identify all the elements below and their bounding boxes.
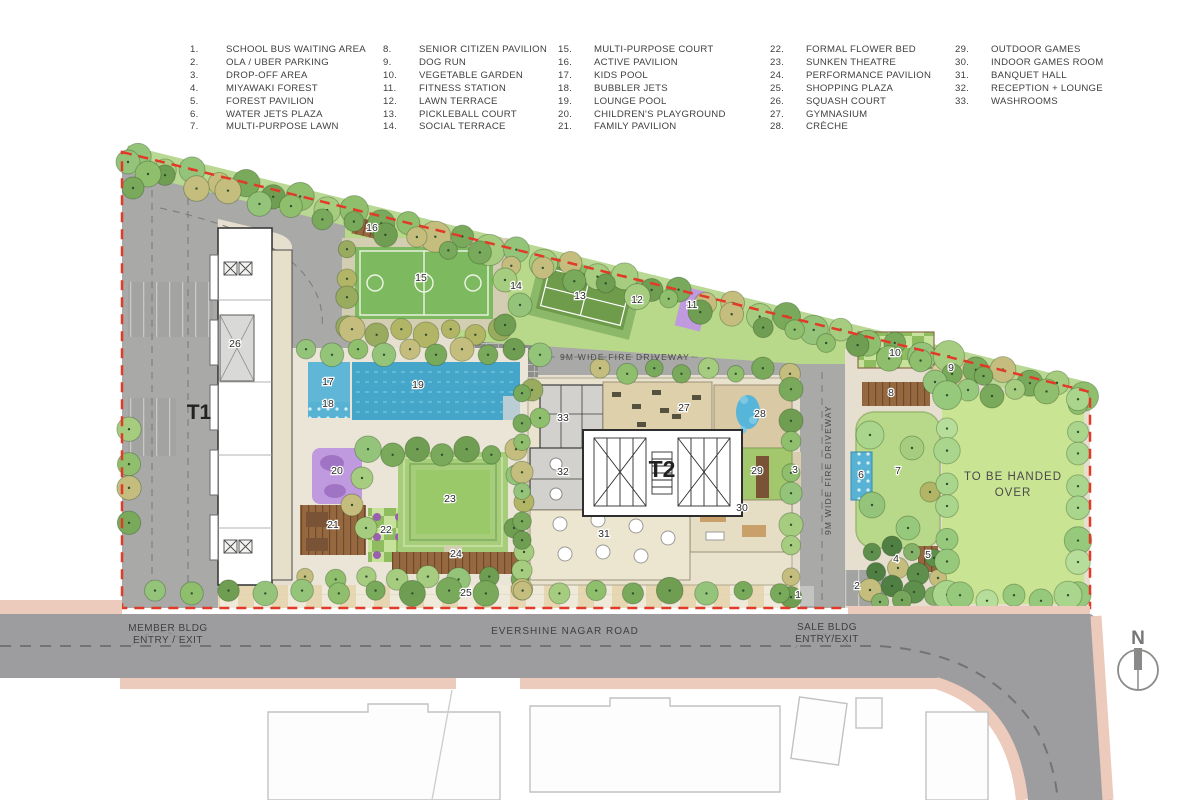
legend-item-number: 16. <box>558 57 594 70</box>
legend-item-label: RECEPTION + LOUNGE <box>991 83 1103 96</box>
tree <box>425 344 447 366</box>
plan-marker-4: 4 <box>893 553 899 565</box>
tree <box>896 516 920 540</box>
tree <box>513 512 532 531</box>
tree <box>296 339 315 358</box>
legend-item: 21.FAMILY PAVILION <box>558 121 726 134</box>
legend-item-number: 21. <box>558 121 594 134</box>
handed-over-label-2: OVER <box>995 487 1032 499</box>
tree <box>660 290 678 308</box>
plan-marker-30: 30 <box>736 502 748 514</box>
tree <box>1054 581 1082 609</box>
tree <box>859 492 885 518</box>
legend-item-label: CHILDREN'S PLAYGROUND <box>594 109 726 122</box>
tree <box>366 581 385 600</box>
tree <box>936 473 958 495</box>
tree <box>935 549 960 574</box>
tree <box>117 417 141 441</box>
legend-item-number: 15. <box>558 44 594 57</box>
plan-marker-32: 32 <box>557 466 569 478</box>
left-road <box>122 152 218 608</box>
legend-item: 7.MULTI-PURPOSE LAWN <box>190 121 366 134</box>
tree <box>511 461 533 483</box>
tree <box>399 580 425 606</box>
legend-item-label: OUTDOOR GAMES <box>991 44 1081 57</box>
tree <box>180 582 203 605</box>
gymnasium <box>603 382 712 435</box>
legend-item: 13.PICKLEBALL COURT <box>383 109 547 122</box>
legend-item: 2.OLA / UBER PARKING <box>190 57 366 70</box>
tree <box>817 334 836 353</box>
plan-marker-25: 25 <box>460 587 472 599</box>
legend-item: 14.SOCIAL TERRACE <box>383 121 547 134</box>
legend-item-number: 29. <box>955 44 991 57</box>
tree <box>253 581 278 606</box>
tree <box>291 579 314 602</box>
north-label: N <box>1131 628 1145 649</box>
compass-needle <box>1134 648 1142 670</box>
legend-item: 20.CHILDREN'S PLAYGROUND <box>558 109 726 122</box>
legend-item: 30.INDOOR GAMES ROOM <box>955 57 1103 70</box>
tree <box>856 421 884 449</box>
legend-item-label: SOCIAL TERRACE <box>419 121 506 134</box>
legend-column: 15.MULTI-PURPOSE COURT16.ACTIVE PAVILION… <box>558 44 726 134</box>
legend-item-label: MULTI-PURPOSE LAWN <box>226 121 339 134</box>
member-entry-label-1: MEMBER BLDG <box>128 623 207 634</box>
tree <box>436 578 462 604</box>
tree <box>381 443 405 467</box>
tree <box>863 543 881 561</box>
plan-marker-24: 24 <box>450 548 462 560</box>
tree <box>407 227 427 247</box>
tree <box>513 385 530 402</box>
legend-item-label: WASHROOMS <box>991 96 1058 109</box>
legend-item-number: 4. <box>190 83 226 96</box>
legend-item-number: 11. <box>383 83 419 96</box>
tree <box>454 436 480 462</box>
site-plan-page: N T1 T2 TO BE HANDED OVER 9M WIDE FIRE D… <box>0 0 1200 800</box>
tree <box>514 483 531 500</box>
plan-marker-17: 17 <box>322 376 334 388</box>
tree <box>936 528 958 550</box>
tree <box>1066 550 1091 575</box>
sale-entry-label-2: ENTRY/EXIT <box>795 634 859 645</box>
tree <box>441 320 460 339</box>
tree <box>279 195 302 218</box>
legend-item: 22.FORMAL FLOWER BED <box>770 44 931 57</box>
tree <box>478 345 498 365</box>
tree <box>344 212 364 232</box>
tree <box>936 418 957 439</box>
tree <box>339 316 365 342</box>
tree <box>727 365 744 382</box>
plan-marker-7: 7 <box>895 465 901 477</box>
plan-marker-20: 20 <box>331 465 343 477</box>
plan-marker-22: 22 <box>380 524 392 536</box>
legend-item: 5.FOREST PAVILION <box>190 96 366 109</box>
tree <box>338 241 355 258</box>
legend-item: 1.SCHOOL BUS WAITING AREA <box>190 44 366 57</box>
tree <box>936 495 959 518</box>
tree <box>341 494 363 516</box>
legend-item: 15.MULTI-PURPOSE COURT <box>558 44 726 57</box>
legend-item-label: SCHOOL BUS WAITING AREA <box>226 44 366 57</box>
legend-column: 29.OUTDOOR GAMES30.INDOOR GAMES ROOM31.B… <box>955 44 1103 109</box>
legend-item-number: 8. <box>383 44 419 57</box>
legend-item-number: 6. <box>190 109 226 122</box>
legend-item-label: ACTIVE PAVILION <box>594 57 678 70</box>
plan-marker-2: 2 <box>854 580 860 592</box>
plan-marker-14: 14 <box>510 280 522 292</box>
tree <box>513 414 531 432</box>
legend-item-label: LAWN TERRACE <box>419 96 498 109</box>
legend-item-label: PICKLEBALL COURT <box>419 109 517 122</box>
tree <box>1067 421 1088 442</box>
legend-item-number: 3. <box>190 70 226 83</box>
tree <box>328 583 349 604</box>
plan-marker-8: 8 <box>888 387 894 399</box>
tree <box>312 209 333 230</box>
legend-item-label: SENIOR CITIZEN PAVILION <box>419 44 547 57</box>
plan-marker-9: 9 <box>948 362 954 374</box>
plan-marker-33: 33 <box>557 412 569 424</box>
sidewalk-bottom-2 <box>520 678 938 689</box>
tree <box>933 381 962 410</box>
tree <box>215 178 241 204</box>
tree <box>549 583 570 604</box>
legend-item: 26.SQUASH COURT <box>770 96 931 109</box>
legend-item-number: 27. <box>770 109 806 122</box>
legend-item-number: 26. <box>770 96 806 109</box>
tree <box>336 286 358 308</box>
legend-item-label: SQUASH COURT <box>806 96 886 109</box>
tree <box>218 580 239 601</box>
legend-item-label: CRÈCHE <box>806 121 848 134</box>
legend-item-label: MIYAWAKI FOREST <box>226 83 318 96</box>
tree <box>351 467 373 489</box>
tree <box>780 482 802 504</box>
member-entry-label-2: ENTRY / EXIT <box>133 635 203 646</box>
legend-item: 29.OUTDOOR GAMES <box>955 44 1103 57</box>
context-buildings <box>268 690 988 800</box>
tree <box>753 318 773 338</box>
plan-marker-23: 23 <box>444 493 456 505</box>
legend-item-label: SUNKEN THEATRE <box>806 57 896 70</box>
tree <box>617 363 638 384</box>
tree <box>468 241 491 264</box>
legend-item-label: GYMNASIUM <box>806 109 867 122</box>
legend-item-number: 28. <box>770 121 806 134</box>
tree <box>882 536 902 556</box>
tree <box>400 339 420 359</box>
legend-item-label: BUBBLER JETS <box>594 83 668 96</box>
tree <box>494 314 516 336</box>
tree <box>903 543 920 560</box>
tree <box>528 343 552 367</box>
road-name-label: EVERSHINE NAGAR ROAD <box>491 626 639 637</box>
handed-over-label-1: TO BE HANDED <box>964 471 1062 483</box>
legend-item: 4.MIYAWAKI FOREST <box>190 83 366 96</box>
legend-item-number: 31. <box>955 70 991 83</box>
legend-item: 33.WASHROOMS <box>955 96 1103 109</box>
tree <box>145 580 166 601</box>
fire-driveway-label-v: 9M WIDE FIRE DRIVEWAY <box>823 405 833 535</box>
tree <box>782 568 800 586</box>
tree <box>512 560 532 580</box>
tree <box>698 358 718 378</box>
sidewalk-top-right <box>848 606 1090 614</box>
tree <box>513 531 531 549</box>
tree <box>117 476 141 500</box>
banquet-hall <box>530 510 690 580</box>
legend-item-label: SHOPPING PLAZA <box>806 83 893 96</box>
legend-item-label: FOREST PAVILION <box>226 96 314 109</box>
plan-marker-29: 29 <box>751 465 763 477</box>
tree <box>781 536 800 555</box>
tree <box>1067 442 1090 465</box>
legend-item: 17.KIDS POOL <box>558 70 726 83</box>
tree <box>508 293 532 317</box>
tree <box>1003 584 1025 606</box>
t1-label: T1 <box>187 401 212 424</box>
tree <box>734 581 753 600</box>
legend-item: 16.ACTIVE PAVILION <box>558 57 726 70</box>
plan-marker-10: 10 <box>889 347 901 359</box>
plan-marker-11: 11 <box>687 299 698 311</box>
legend-item: 10.VEGETABLE GARDEN <box>383 70 547 83</box>
legend-item-label: DROP-OFF AREA <box>226 70 308 83</box>
legend-item-number: 32. <box>955 83 991 96</box>
tree <box>974 367 993 386</box>
tree <box>656 577 683 604</box>
tree <box>320 343 344 367</box>
plan-marker-13: 13 <box>574 290 586 302</box>
legend-column: 1.SCHOOL BUS WAITING AREA2.OLA / UBER PA… <box>190 44 366 134</box>
sale-entry-label-1: SALE BLDG <box>797 622 857 633</box>
tree <box>645 359 663 377</box>
legend-item-number: 10. <box>383 70 419 83</box>
tree <box>622 583 643 604</box>
legend-item-number: 7. <box>190 121 226 134</box>
legend-item: 27.GYMNASIUM <box>770 109 931 122</box>
plan-marker-27: 27 <box>678 402 690 414</box>
legend-item-number: 12. <box>383 96 419 109</box>
fire-driveway-label-h: 9M WIDE FIRE DRIVEWAY <box>560 352 690 362</box>
tree <box>184 176 210 202</box>
north-compass: N <box>1118 628 1158 690</box>
tree <box>980 384 1004 408</box>
tree <box>672 365 690 383</box>
sidewalk-bottom-1 <box>120 678 456 689</box>
senior-citizen-pavilion-deck <box>862 382 930 406</box>
plan-marker-18: 18 <box>322 398 334 410</box>
tree <box>934 437 960 463</box>
legend-item-label: FAMILY PAVILION <box>594 121 676 134</box>
tree <box>1066 496 1090 520</box>
legend-item-label: BANQUET HALL <box>991 70 1067 83</box>
tree <box>770 584 789 603</box>
legend-item: 6.WATER JETS PLAZA <box>190 109 366 122</box>
legend-item-number: 23. <box>770 57 806 70</box>
legend-item-label: PERFORMANCE PAVILION <box>806 70 931 83</box>
tree <box>779 513 803 537</box>
legend-item: 8.SENIOR CITIZEN PAVILION <box>383 44 547 57</box>
tree <box>372 343 396 367</box>
legend-item-number: 1. <box>190 44 226 57</box>
tree <box>752 357 774 379</box>
legend-item-number: 19. <box>558 96 594 109</box>
legend-item-number: 9. <box>383 57 419 70</box>
legend-item: 11.FITNESS STATION <box>383 83 547 96</box>
tree <box>355 436 382 463</box>
tree <box>513 581 532 600</box>
legend-item-number: 17. <box>558 70 594 83</box>
legend-item-label: KIDS POOL <box>594 70 648 83</box>
legend-item-number: 14. <box>383 121 419 134</box>
lounge-pool <box>352 362 520 420</box>
legend-item: 32.RECEPTION + LOUNGE <box>955 83 1103 96</box>
legend-item: 9.DOG RUN <box>383 57 547 70</box>
tree <box>909 349 931 371</box>
plan-marker-5: 5 <box>925 549 931 561</box>
tree <box>779 409 803 433</box>
legend-item: 3.DROP-OFF AREA <box>190 70 366 83</box>
plan-marker-21: 21 <box>327 519 339 531</box>
t2-label: T2 <box>649 456 676 482</box>
legend-item-label: OLA / UBER PARKING <box>226 57 329 70</box>
tree <box>530 408 550 428</box>
legend-item: 31.BANQUET HALL <box>955 70 1103 83</box>
tree <box>348 339 368 359</box>
tree <box>482 446 500 464</box>
legend-item: 19.LOUNGE POOL <box>558 96 726 109</box>
plan-marker-3: 3 <box>792 464 798 476</box>
tree <box>781 431 801 451</box>
tree <box>1067 475 1090 498</box>
plan-marker-12: 12 <box>631 294 643 306</box>
legend-column: 8.SENIOR CITIZEN PAVILION9.DOG RUN10.VEG… <box>383 44 547 134</box>
parking-stripes-1 <box>128 282 213 337</box>
plan-marker-19: 19 <box>412 379 424 391</box>
tree <box>355 517 377 539</box>
legend-column: 22.FORMAL FLOWER BED23.SUNKEN THEATRE24.… <box>770 44 931 134</box>
legend-item-number: 22. <box>770 44 806 57</box>
tree <box>247 192 272 217</box>
tree <box>450 337 474 361</box>
tree <box>596 274 615 293</box>
tree <box>391 319 412 340</box>
legend-item: 24.PERFORMANCE PAVILION <box>770 70 931 83</box>
tree <box>947 582 974 609</box>
tree <box>405 437 430 462</box>
legend-item-label: VEGETABLE GARDEN <box>419 70 523 83</box>
tree <box>503 338 525 360</box>
legend-item-label: FORMAL FLOWER BED <box>806 44 916 57</box>
legend-item-label: DOG RUN <box>419 57 466 70</box>
legend-item-number: 2. <box>190 57 226 70</box>
legend-item-number: 25. <box>770 83 806 96</box>
legend-item-label: FITNESS STATION <box>419 83 506 96</box>
tree <box>586 581 606 601</box>
legend-item-label: WATER JETS PLAZA <box>226 109 323 122</box>
tree <box>532 257 554 279</box>
tree <box>785 320 805 340</box>
plan-marker-26: 26 <box>229 338 241 350</box>
tree <box>473 581 499 607</box>
tree <box>514 434 531 451</box>
legend-item-label: MULTI-PURPOSE COURT <box>594 44 714 57</box>
legend-item-number: 5. <box>190 96 226 109</box>
legend-item-number: 24. <box>770 70 806 83</box>
legend-item-number: 13. <box>383 109 419 122</box>
tree <box>900 436 924 460</box>
plan-marker-28: 28 <box>754 408 766 420</box>
legend-item-label: INDOOR GAMES ROOM <box>991 57 1103 70</box>
plan-marker-6: 6 <box>858 469 864 481</box>
legend: 1.SCHOOL BUS WAITING AREA2.OLA / UBER PA… <box>0 0 1200 150</box>
tree <box>779 377 803 401</box>
tree <box>695 582 718 605</box>
plan-marker-1: 1 <box>795 589 801 601</box>
plan-marker-31: 31 <box>598 528 610 540</box>
legend-item: 18.BUBBLER JETS <box>558 83 726 96</box>
legend-item: 12.LAWN TERRACE <box>383 96 547 109</box>
legend-item: 23.SUNKEN THEATRE <box>770 57 931 70</box>
plan-marker-16: 16 <box>366 222 378 234</box>
tree <box>431 444 453 466</box>
legend-item-number: 33. <box>955 96 991 109</box>
legend-item: 28.CRÈCHE <box>770 121 931 134</box>
sidewalk-left <box>0 600 122 614</box>
legend-item: 25.SHOPPING PLAZA <box>770 83 931 96</box>
tower-t1 <box>210 228 292 585</box>
legend-item-number: 30. <box>955 57 991 70</box>
legend-item-number: 18. <box>558 83 594 96</box>
legend-item-number: 20. <box>558 109 594 122</box>
legend-item-label: LOUNGE POOL <box>594 96 667 109</box>
tree <box>439 241 457 259</box>
tree <box>1005 379 1025 399</box>
plan-marker-15: 15 <box>415 272 427 284</box>
tree <box>122 177 144 199</box>
